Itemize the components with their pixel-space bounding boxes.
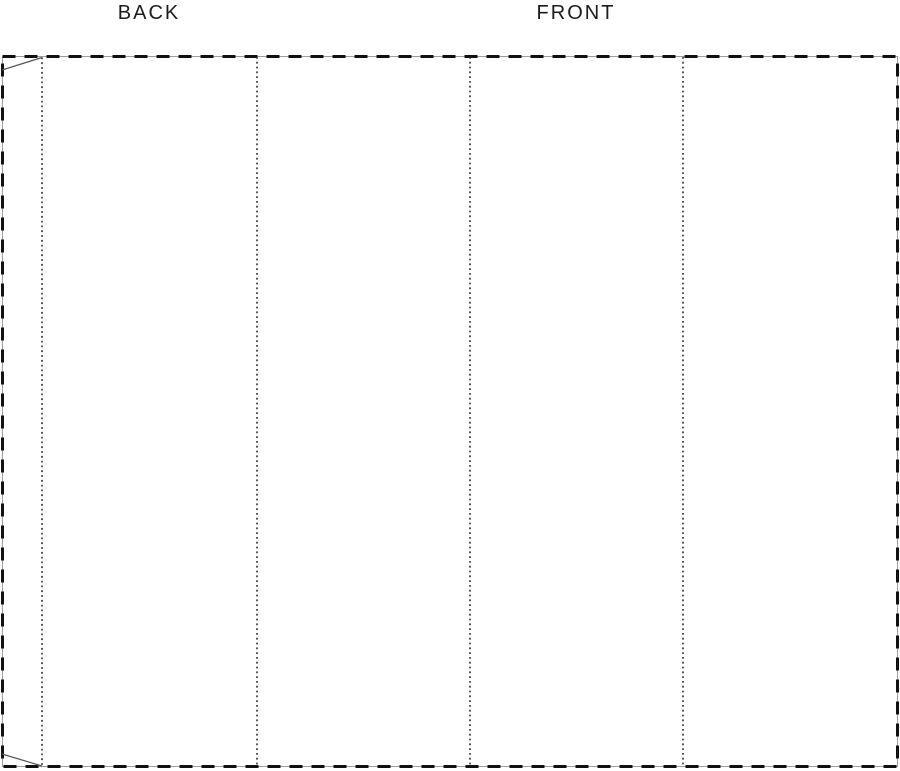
- dieline-canvas: BACK FRONT: [0, 0, 900, 771]
- dieline-drawing: BACK FRONT: [0, 0, 900, 771]
- front-panel-label: FRONT: [537, 2, 616, 24]
- back-panel-label: BACK: [118, 2, 180, 24]
- drawing-background: [0, 0, 900, 771]
